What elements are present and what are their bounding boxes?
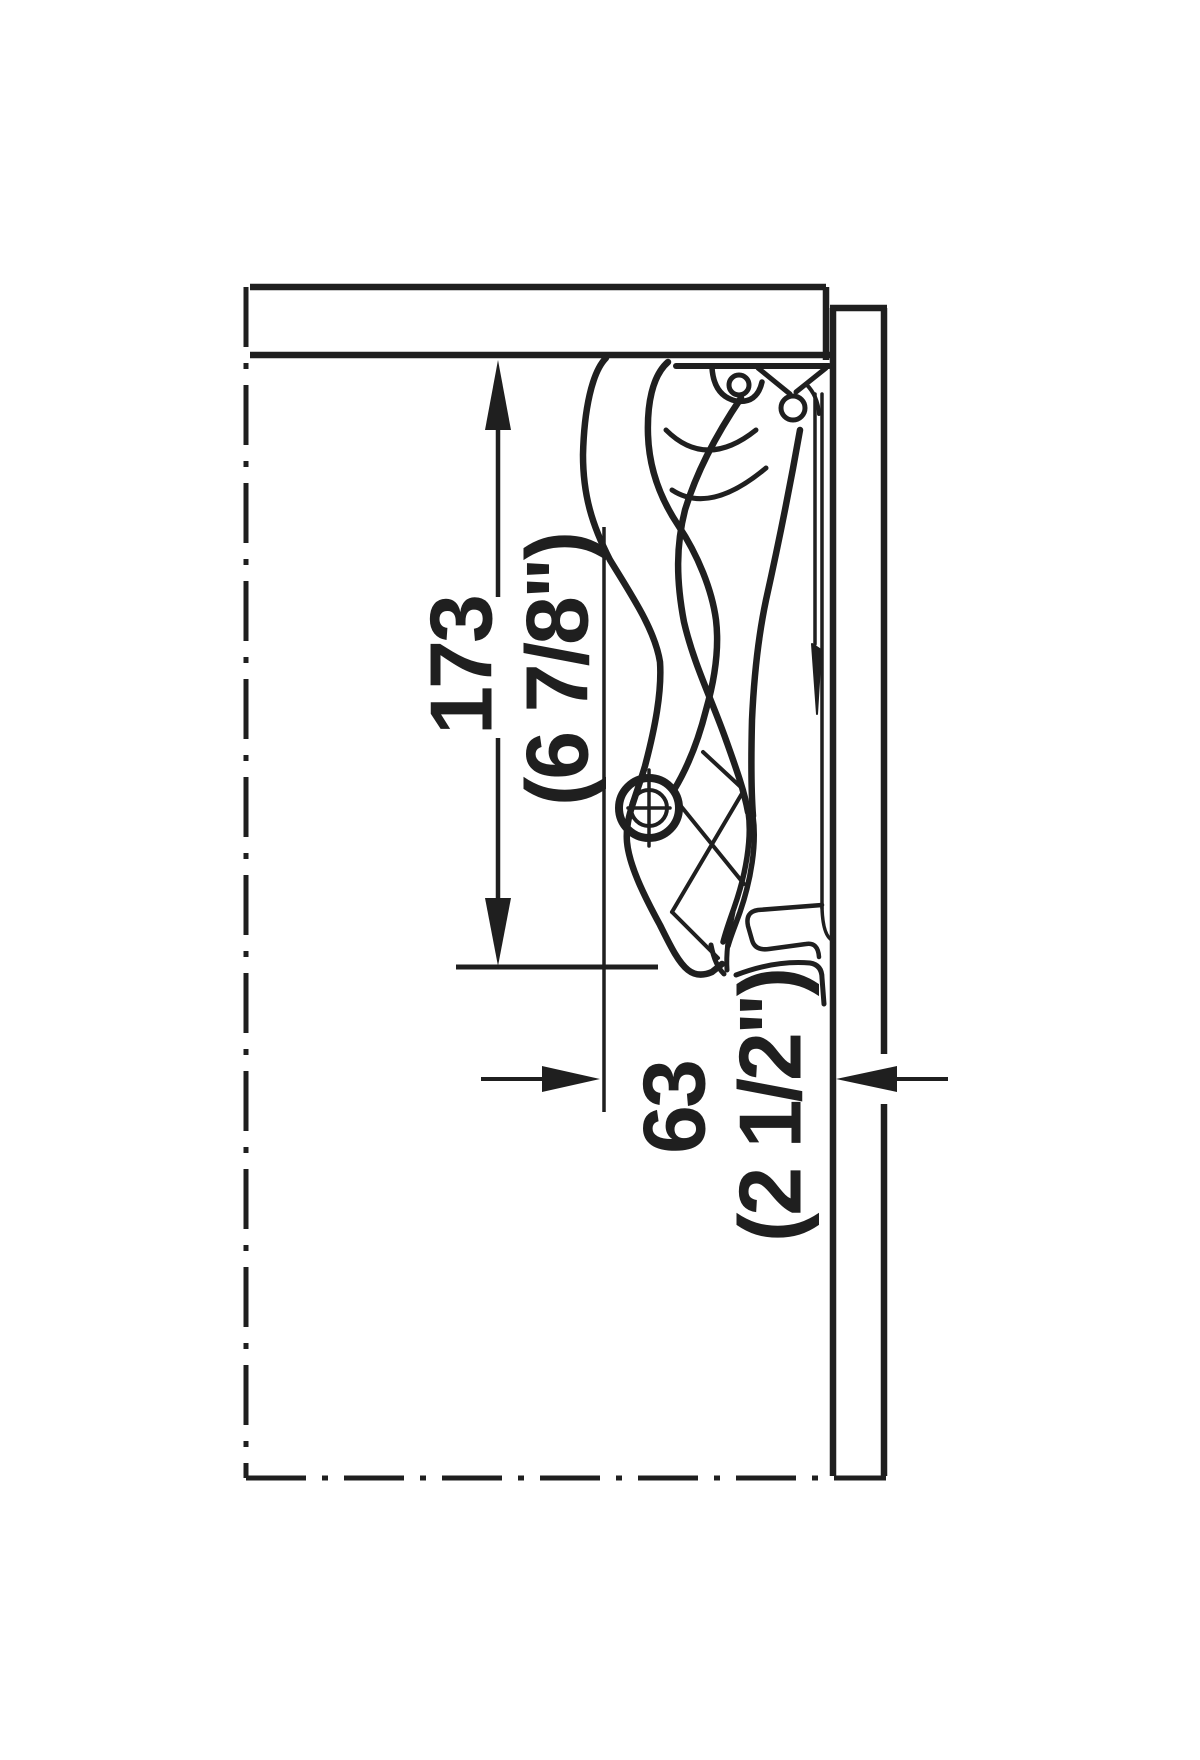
flap-fitting-section-drawing: 173 (6 7/8") 63 (2 1/2") [0,0,1200,1760]
arrowhead-down [485,898,511,966]
height-dim-inch-label: (6 7/8") [508,534,607,806]
flap-lift-mechanism [583,358,834,1004]
arrowhead-left [836,1066,897,1092]
section-cut-lines [246,287,886,1478]
linkage-line-4 [672,912,718,958]
door-bottom-bracket-upper [747,905,822,957]
cabinet-top-panel [250,287,830,360]
linkage-line-3 [676,800,744,884]
height-dim-mm-label: 173 [412,597,511,735]
pivot-pin-rear [781,396,805,420]
bracket-to-rail-curve [806,384,819,414]
arrowhead-up [485,360,511,430]
arrowhead-right [542,1066,600,1092]
flap-door-panel [830,308,887,1476]
technical-drawing-page: 173 (6 7/8") 63 (2 1/2") [0,0,1200,1760]
depth-dim-inch-label: (2 1/2") [721,970,820,1242]
depth-dim-mm-label: 63 [625,1062,724,1154]
cam-arc-lower [672,468,766,499]
door-rail-spike [812,644,821,714]
band-arm-right-edge [751,430,800,816]
lever-arm-inner-edge [648,362,717,790]
pivot-pin-front [729,375,749,395]
